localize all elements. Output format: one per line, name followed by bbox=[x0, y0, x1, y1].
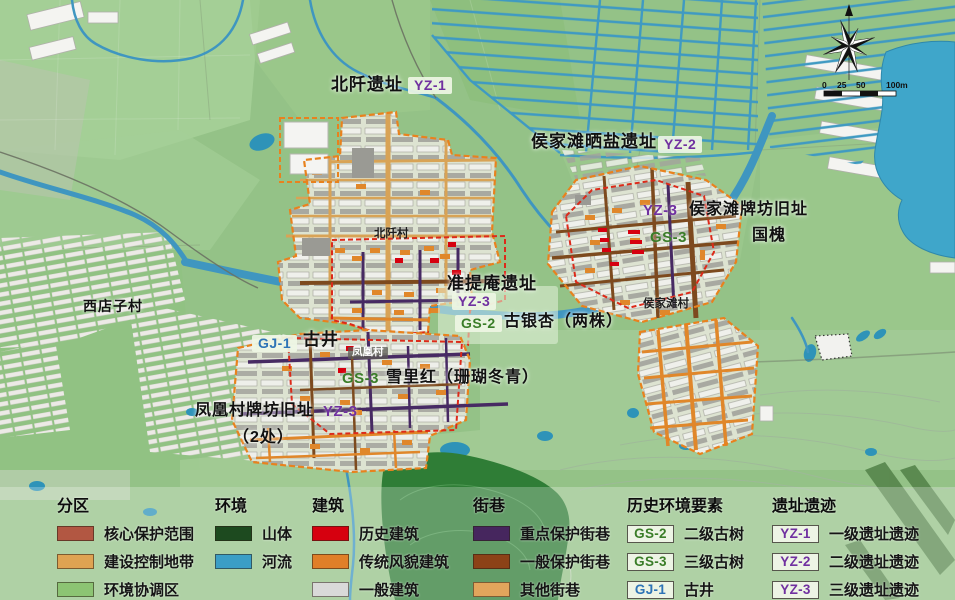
tree-label-guohuai: 国槐 bbox=[752, 227, 786, 245]
legend-item: 山体 bbox=[215, 524, 292, 543]
village-label-xidianzi: 西店子村 bbox=[83, 299, 143, 314]
site-tag-yz3-fenghuang: YZ-3 bbox=[323, 404, 358, 421]
legend-item: 历史建筑 bbox=[312, 524, 449, 543]
legend-item: 传统风貌建筑 bbox=[312, 552, 449, 571]
legend-label: 三级遗址遗迹 bbox=[829, 579, 919, 600]
tree-tag-gs3-houjiatan: GS-3 bbox=[650, 230, 687, 247]
tag-gs2: GS-2 bbox=[627, 525, 674, 543]
legend-item: GJ-1 古井 bbox=[627, 580, 744, 599]
scale-tick-50: 50 bbox=[856, 80, 865, 90]
site-tag-yz3-houjiatan: YZ-3 bbox=[643, 203, 678, 220]
swatch-core-protection bbox=[57, 526, 94, 541]
legend-item: 建设控制地带 bbox=[57, 552, 194, 571]
legend-label: 二级古树 bbox=[684, 523, 744, 544]
well-tag-gj1: GJ-1 bbox=[252, 335, 297, 352]
legend-section-environment: 环境 山体 河流 bbox=[215, 492, 292, 580]
legend-label: 古井 bbox=[684, 579, 714, 600]
tree-tag-gs3-xuelihong: GS-3 bbox=[342, 371, 379, 388]
legend-title: 分区 bbox=[57, 492, 194, 516]
legend-label: 山体 bbox=[262, 523, 292, 544]
legend-label: 二级遗址遗迹 bbox=[829, 551, 919, 572]
legend-label: 重点保护街巷 bbox=[520, 523, 610, 544]
legend-label: 一般建筑 bbox=[359, 579, 419, 600]
site-label-fenghuang-paifang: 凤凰村牌坊旧址 bbox=[195, 402, 314, 420]
well-label-gujing: 古井 bbox=[303, 331, 339, 350]
site-label-saltworks: 侯家滩晒盐遗址 bbox=[531, 133, 657, 152]
tree-label-ginkgo: 古银杏（两株） bbox=[504, 313, 623, 331]
legend-item: YZ-3 三级遗址遗迹 bbox=[772, 580, 919, 599]
legend-title: 街巷 bbox=[473, 492, 610, 516]
scale-tick-0: 0 bbox=[822, 80, 827, 90]
site-label-fenghuang-paifang-count: （2处） bbox=[233, 429, 294, 447]
legend-item: 环境协调区 bbox=[57, 580, 194, 599]
scale-bar-labels: 0 25 50 100m bbox=[824, 80, 914, 90]
swatch-construction-control bbox=[57, 554, 94, 569]
legend-label: 历史建筑 bbox=[359, 523, 419, 544]
legend-item: GS-2 二级古树 bbox=[627, 524, 744, 543]
legend-item: YZ-1 一级遗址遗迹 bbox=[772, 524, 919, 543]
legend-label: 一级遗址遗迹 bbox=[829, 523, 919, 544]
swatch-key-protected-street bbox=[473, 526, 510, 541]
legend-label: 其他街巷 bbox=[520, 579, 580, 600]
legend-section-historic-elements: 历史环境要素 GS-2 二级古树 GS-3 三级古树 GJ-1 古井 bbox=[627, 492, 744, 600]
site-tag-yz1: YZ-1 bbox=[408, 77, 452, 94]
tag-gj1: GJ-1 bbox=[627, 581, 674, 599]
village-label-houjiatan: 侯家滩村 bbox=[643, 298, 689, 311]
tag-yz1: YZ-1 bbox=[772, 525, 819, 543]
village-label-fenghuang: 凤凰村 bbox=[348, 347, 388, 359]
swatch-other-street bbox=[473, 582, 510, 597]
scale-tick-100: 100m bbox=[886, 80, 908, 90]
legend-label: 传统风貌建筑 bbox=[359, 551, 449, 572]
legend-item: GS-3 三级古树 bbox=[627, 552, 744, 571]
legend-label: 核心保护范围 bbox=[104, 523, 194, 544]
legend-item: 河流 bbox=[215, 552, 292, 571]
legend-item: 核心保护范围 bbox=[57, 524, 194, 543]
legend-title: 遗址遗迹 bbox=[772, 492, 919, 516]
scale-bar bbox=[824, 91, 896, 96]
site-label-zhuntian: 准提庵遗址 bbox=[447, 275, 537, 294]
legend-title: 建筑 bbox=[312, 492, 449, 516]
tag-yz3: YZ-3 bbox=[772, 581, 819, 599]
legend-label: 三级古树 bbox=[684, 551, 744, 572]
legend-label: 环境协调区 bbox=[104, 579, 179, 600]
legend-section-streets: 街巷 重点保护街巷 一般保护街巷 其他街巷 bbox=[473, 492, 610, 600]
heritage-planning-map: 北阡遗址 YZ-1 侯家滩晒盐遗址 YZ-2 侯家滩牌坊旧址 YZ-3 GS-3… bbox=[0, 0, 955, 600]
scale-tick-25: 25 bbox=[837, 80, 846, 90]
legend-label: 建设控制地带 bbox=[104, 551, 194, 572]
legend-item: 重点保护街巷 bbox=[473, 524, 610, 543]
legend-item: 一般建筑 bbox=[312, 580, 449, 599]
village-label-beiqian: 北阡村 bbox=[374, 228, 409, 241]
swatch-river bbox=[215, 554, 252, 569]
tree-label-xuelihong: 雪里红（珊瑚冬青） bbox=[386, 369, 539, 387]
legend-item: YZ-2 二级遗址遗迹 bbox=[772, 552, 919, 571]
tag-yz2: YZ-2 bbox=[772, 553, 819, 571]
swatch-general-protected-street bbox=[473, 554, 510, 569]
swatch-general-building bbox=[312, 582, 349, 597]
swatch-historic-building bbox=[312, 526, 349, 541]
site-tag-yz3-zhuntian: YZ-3 bbox=[452, 293, 496, 310]
legend-title: 历史环境要素 bbox=[627, 492, 744, 516]
tree-tag-gs2-ginkgo: GS-2 bbox=[455, 315, 502, 332]
legend-section-sites: 遗址遗迹 YZ-1 一级遗址遗迹 YZ-2 二级遗址遗迹 YZ-3 三级遗址遗迹 bbox=[772, 492, 919, 600]
legend-section-zones: 分区 核心保护范围 建设控制地带 环境协调区 bbox=[57, 492, 194, 600]
legend-item: 一般保护街巷 bbox=[473, 552, 610, 571]
swatch-environment-coordination bbox=[57, 582, 94, 597]
legend-label: 一般保护街巷 bbox=[520, 551, 610, 572]
legend-title: 环境 bbox=[215, 492, 292, 516]
tag-gs3: GS-3 bbox=[627, 553, 674, 571]
legend-label: 河流 bbox=[262, 551, 292, 572]
swatch-traditional-building bbox=[312, 554, 349, 569]
legend-section-buildings: 建筑 历史建筑 传统风貌建筑 一般建筑 bbox=[312, 492, 449, 600]
legend-item: 其他街巷 bbox=[473, 580, 610, 599]
site-tag-yz2: YZ-2 bbox=[658, 136, 702, 153]
swatch-mountain bbox=[215, 526, 252, 541]
site-label-beiqian: 北阡遗址 bbox=[331, 76, 403, 95]
site-label-houjiatan-paifang: 侯家滩牌坊旧址 bbox=[689, 201, 808, 219]
